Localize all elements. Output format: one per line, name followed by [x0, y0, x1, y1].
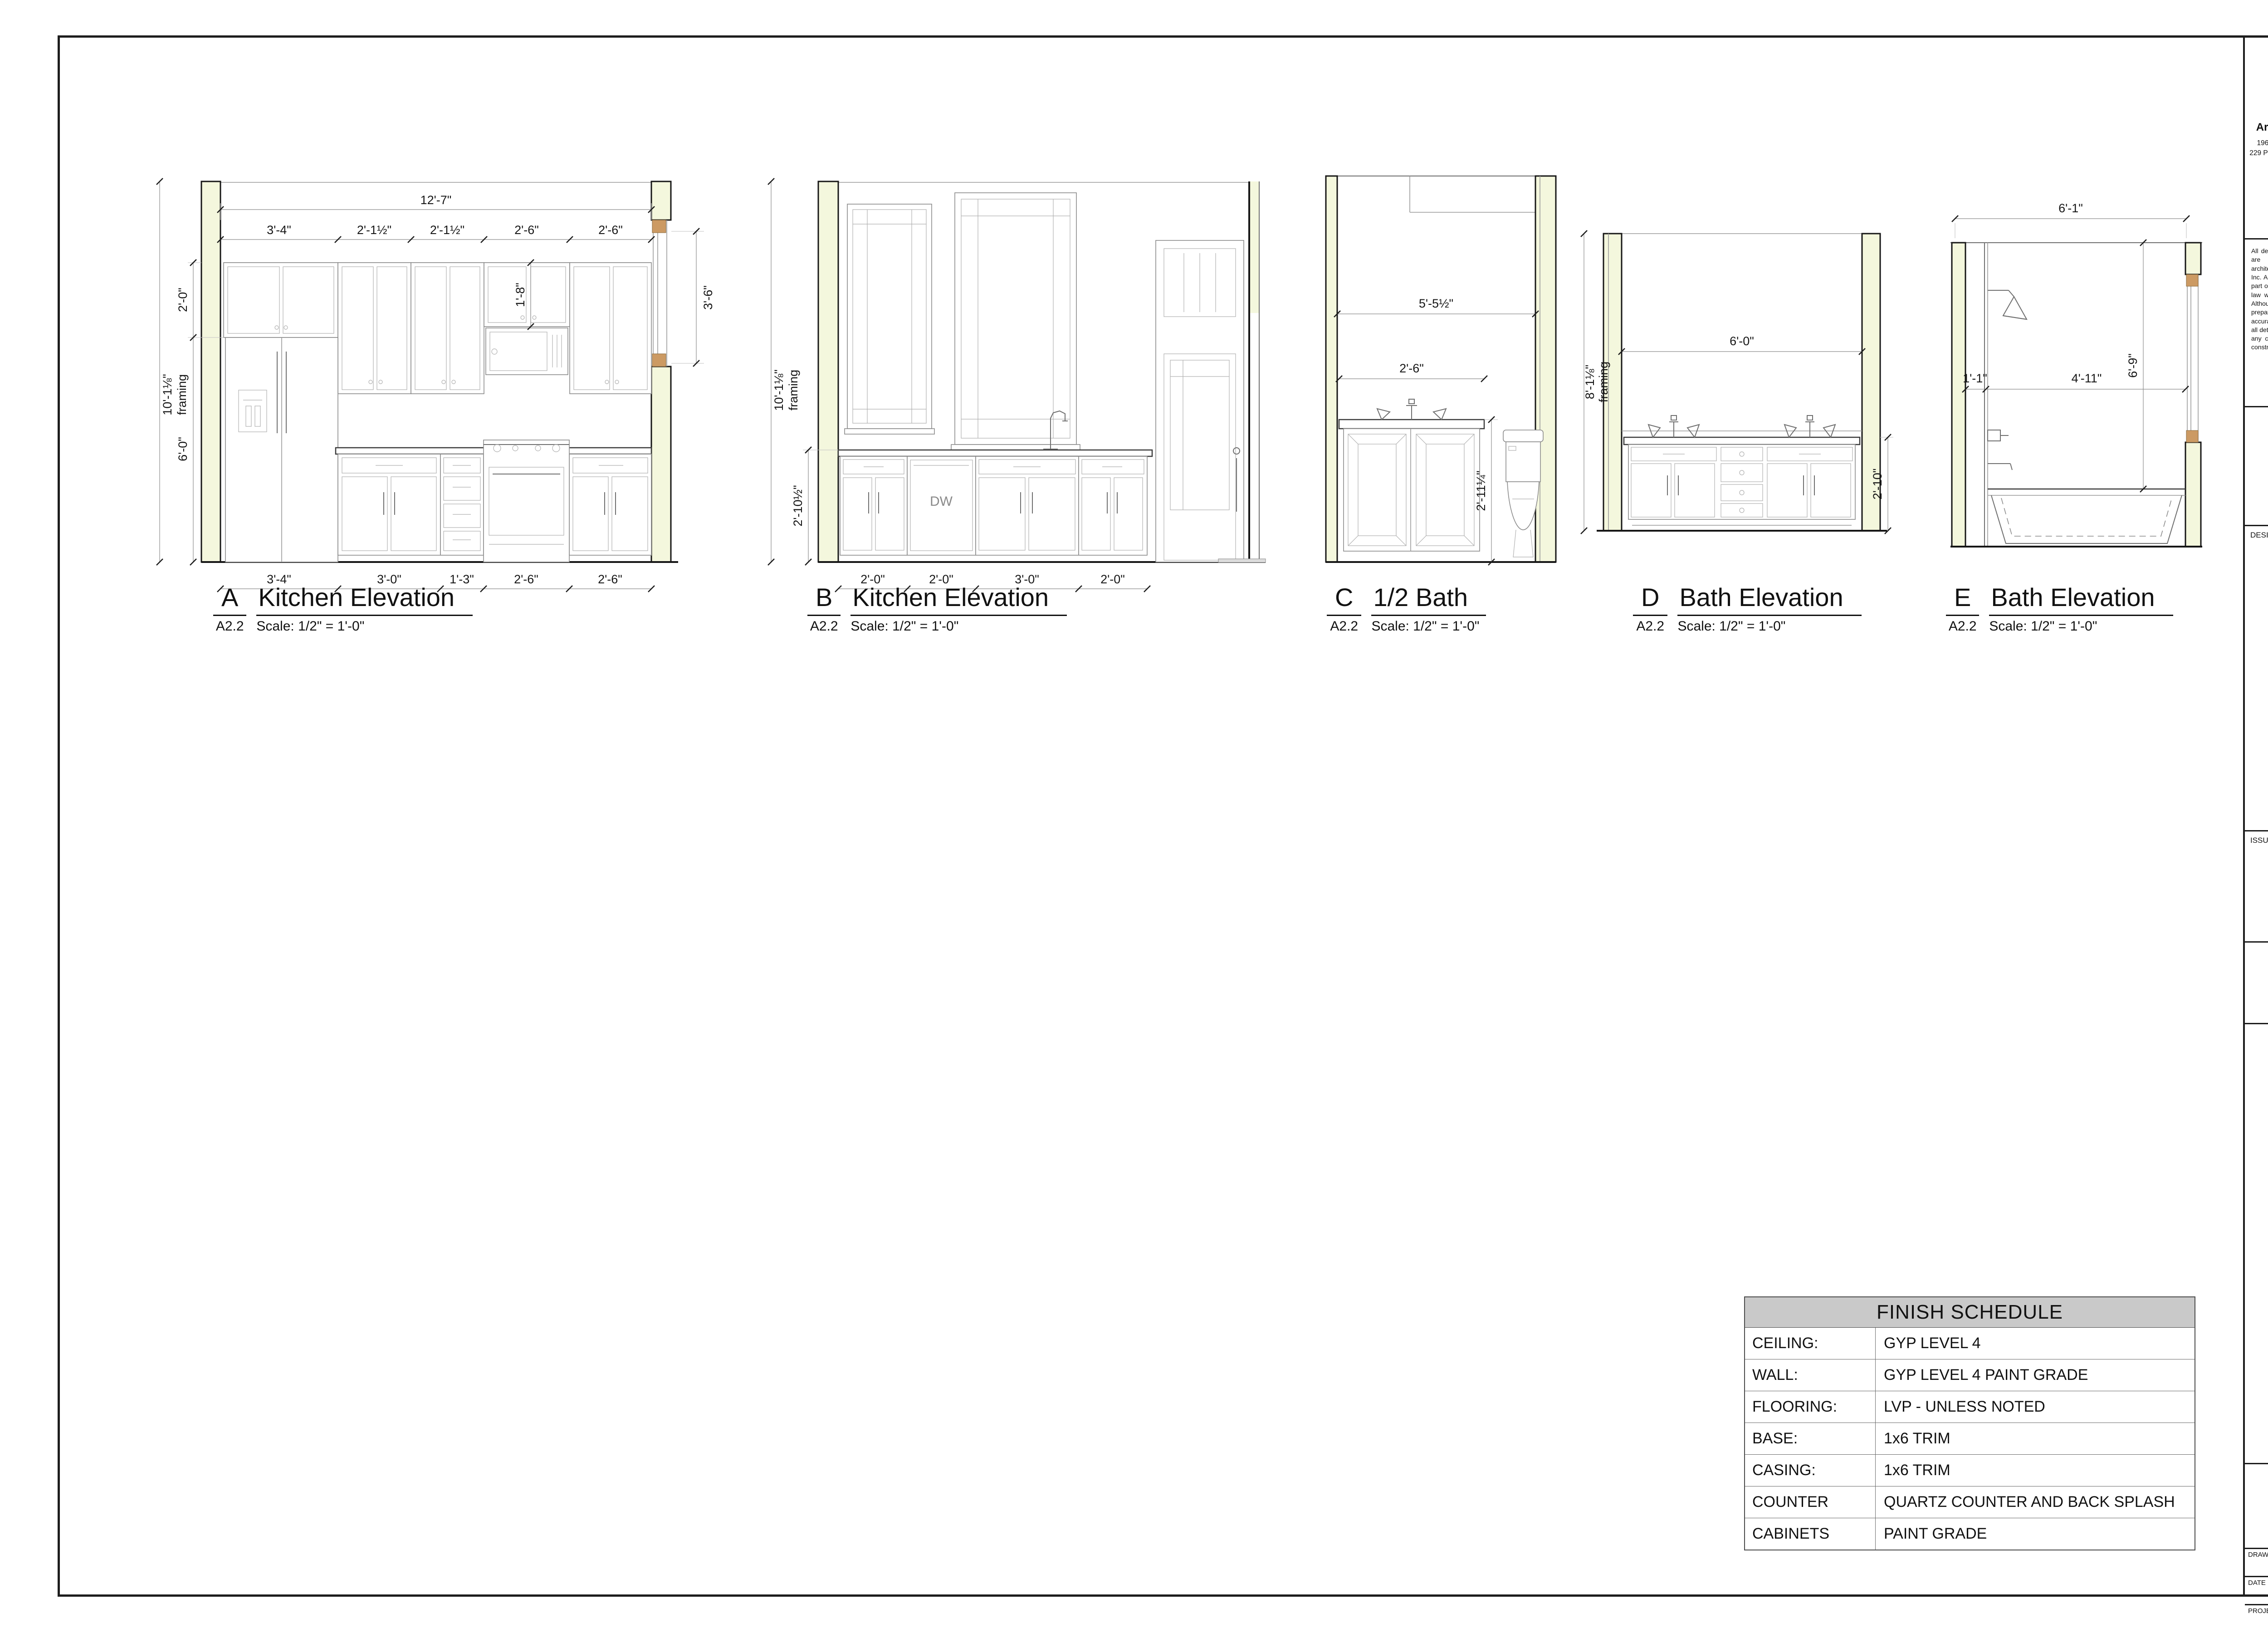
finish-label: CABINETS: [1745, 1518, 1876, 1550]
design-architect-label: DESIGN ARCHITECT:: [2245, 526, 2268, 540]
drawing-scale: Scale: 1/2" = 1'-0": [1371, 616, 1486, 634]
finish-label: COUNTER: [1745, 1486, 1876, 1518]
elevation-a-title: A A2.2 Kitchen Elevation Scale: 1/2" = 1…: [213, 582, 473, 634]
svg-text:2'-0": 2'-0": [1100, 572, 1125, 586]
elevation-e-drawing: 6'-1" 1'-1" 4'-11" 6'-9": [1937, 195, 2214, 626]
svg-text:2'-1½": 2'-1½": [430, 223, 464, 237]
svg-text:10'-1⅛": 10'-1⅛": [161, 374, 174, 415]
elevation-c-faucet: [1377, 399, 1446, 420]
project-number-label: PROJECT NUMBER: [2248, 1607, 2268, 1615]
elevation-d-faucets: [1648, 416, 1835, 437]
drawing-sheet-ref: A2.2: [1327, 616, 1361, 634]
svg-text:3'-4": 3'-4": [267, 223, 291, 237]
elevation-a-range: [484, 440, 569, 562]
svg-text:1'-8": 1'-8": [513, 283, 527, 307]
title-block: Architectural Overflow, LLC 1964 W Wayza…: [2243, 35, 2268, 1597]
architect-address-line2: Berkeley,CA 94704: [2245, 692, 2268, 702]
title-block-footer: DRAWING BY GC DATE 11/3/24 PROJECT NUMBE…: [2245, 1549, 2268, 1633]
firm-address-line2: 229 Peachtree St NE, Ste 1008 Atlanta, G…: [2245, 148, 2268, 158]
svg-text:2'-6": 2'-6": [514, 223, 539, 237]
svg-text:2'-6": 2'-6": [598, 572, 622, 586]
elevation-d-title: D A2.2 Bath Elevation Scale: 1/2" = 1'-0…: [1633, 582, 1862, 634]
table-row: CEILING: GYP LEVEL 4: [1745, 1328, 2195, 1359]
finish-schedule-title: FINISH SCHEDULE: [1745, 1297, 2195, 1328]
svg-text:2'-10½": 2'-10½": [791, 485, 805, 526]
table-row: CABINETS PAINT GRADE: [1745, 1518, 2195, 1550]
elevation-c-title: C A2.2 1/2 Bath Scale: 1/2" = 1'-0": [1327, 582, 1486, 634]
finish-value: QUARTZ COUNTER AND BACK SPLASH: [1876, 1486, 2195, 1518]
svg-text:1'-1": 1'-1": [1963, 372, 1987, 385]
svg-text:framing: framing: [175, 374, 189, 415]
svg-text:2'-6": 2'-6": [514, 572, 538, 586]
svg-text:4'-11": 4'-11": [2072, 372, 2102, 385]
svg-text:6'-0": 6'-0": [1730, 334, 1754, 348]
finish-label: WALL:: [1745, 1359, 1876, 1391]
disclaimer-text: All designs and plans contained in these…: [2251, 247, 2268, 352]
svg-text:10'-1⅛": 10'-1⅛": [772, 369, 786, 411]
svg-text:3'-6": 3'-6": [701, 285, 715, 310]
svg-text:2'-11¼": 2'-11¼": [1474, 470, 1488, 511]
svg-text:2'-0": 2'-0": [176, 288, 190, 312]
elevation-a-refrigerator: [225, 337, 338, 562]
elevation-a-drawing: 12'-7" 3'-4" 2'-1½" 2'-1½" 2'-6" 2'-6" 3…: [150, 177, 726, 635]
preliminary-stamp: PRELIMINARY - NOT FOR CONSTRUCTION: [2245, 943, 2268, 1024]
issue-section: ISSUE:: [2245, 831, 2268, 943]
elevation-c-vanity: [1339, 420, 1484, 551]
table-row: COUNTER QUARTZ COUNTER AND BACK SPLASH: [1745, 1486, 2195, 1518]
finish-label: FLOORING:: [1745, 1391, 1876, 1423]
svg-text:2'-10": 2'-10": [1871, 469, 1884, 500]
finish-label: CASING:: [1745, 1455, 1876, 1486]
date-label: DATE: [2248, 1579, 2266, 1587]
footer-left-column: DRAWING BY GC DATE 11/3/24 PROJECT NUMBE…: [2245, 1549, 2268, 1633]
drawing-name: Kitchen Elevation: [256, 582, 473, 616]
elevation-b-base-cabinets: DW: [838, 450, 1152, 555]
table-row: FLOORING: LVP - UNLESS NOTED: [1745, 1391, 2195, 1423]
date-row: DATE 11/3/24: [2245, 1577, 2268, 1605]
elevation-d-vanity: [1622, 431, 1862, 525]
drawing-sheet-ref: A2.2: [807, 616, 841, 634]
disclaimer-section: All designs and plans contained in these…: [2245, 240, 2268, 407]
svg-text:DW: DW: [930, 494, 953, 509]
svg-text:2'-6": 2'-6": [598, 223, 623, 237]
design-architect-section: DESIGN ARCHITECT:: [2245, 526, 2268, 831]
elevation-e-title: E A2.2 Bath Elevation Scale: 1/2" = 1'-0…: [1946, 582, 2173, 634]
finish-value: 1x6 TRIM: [1876, 1423, 2195, 1454]
issue-label: ISSUE:: [2245, 831, 2268, 845]
elevation-d-drawing: 8'-1⅛" framing 6'-0" 2'-10": [1579, 213, 1896, 621]
elevation-b-drawing: DW: [726, 177, 1302, 635]
finish-label: CEILING:: [1745, 1328, 1876, 1359]
drawing-by-label: DRAWING BY: [2248, 1551, 2268, 1559]
drawing-scale: Scale: 1/2" = 1'-0": [850, 616, 1067, 634]
architect-address: 2100 Milvia St, Ste 125 Berkeley,CA 9470…: [2245, 682, 2268, 713]
drawing-sheet: 12'-7" 3'-4" 2'-1½" 2'-1½" 2'-6" 2'-6" 3…: [0, 0, 2268, 1633]
svg-text:12'-7": 12'-7": [420, 193, 452, 207]
firm-address: 1964 W Wayzata Blvd, Long Lake, MN 55356…: [2245, 138, 2268, 159]
architect-name: Opticos Design, Inc.: [2245, 668, 2268, 679]
sheet-title: Interior Elevations: [2245, 1464, 2268, 1549]
svg-text:2'-1½": 2'-1½": [357, 223, 391, 237]
drawing-sheet-ref: A2.2: [213, 616, 246, 634]
table-row: WALL: GYP LEVEL 4 PAINT GRADE: [1745, 1359, 2195, 1391]
table-row: CASING: 1x6 TRIM: [1745, 1455, 2195, 1486]
finish-value: PAINT GRADE: [1876, 1518, 2195, 1550]
project-number-row: PROJECT NUMBER PRJ - 342: [2245, 1605, 2268, 1633]
drawing-name: Kitchen Elevation: [850, 582, 1067, 616]
svg-text:framing: framing: [1597, 362, 1610, 402]
drawing-by-row: DRAWING BY GC: [2245, 1549, 2268, 1577]
elevation-b-windows: [845, 193, 1080, 450]
finish-label: BASE:: [1745, 1423, 1876, 1454]
elevation-e-shower-fixtures: [1988, 290, 2027, 470]
project-title-rotated: West Village CY UNIT-3 Florence, Alabama: [2245, 1024, 2268, 1464]
firm-address-line1: 1964 W Wayzata Blvd, Long Lake, MN 55356: [2245, 138, 2268, 148]
elevation-b-title: B A2.2 Kitchen Elevation Scale: 1/2" = 1…: [807, 582, 1067, 634]
svg-text:6'-9": 6'-9": [2126, 353, 2140, 378]
elevation-e-walls: [1950, 243, 2202, 547]
drawing-scale: Scale: 1/2" = 1'-0": [1989, 616, 2173, 634]
svg-text:8'-1⅛": 8'-1⅛": [1583, 365, 1597, 399]
drawing-letter: E: [1946, 582, 1979, 616]
drawing-sheet-ref: A2.2: [1946, 616, 1979, 634]
finish-value: 1x6 TRIM: [1876, 1455, 2195, 1486]
firm-website: www.architecturaloverflow.com: [2245, 176, 2268, 186]
copyright-line: © 2024 Opticos Design Inc.: [2251, 357, 2268, 365]
blank-section: [2245, 407, 2268, 526]
svg-text:5'-5½": 5'-5½": [1419, 297, 1453, 310]
drawing-name: Bath Elevation: [1989, 582, 2173, 616]
elevation-a-microwave: [486, 328, 568, 375]
drawing-name: 1/2 Bath: [1371, 582, 1486, 616]
elevation-c-drawing: 5'-5½" 2'-6" 2'-11¼": [1311, 172, 1574, 635]
svg-text:6'-1": 6'-1": [2058, 201, 2083, 215]
project-title-section: West Village CY UNIT-3 Florence, Alabama: [2245, 1024, 2268, 1464]
architect-website: opticosdesign.com: [2245, 703, 2268, 713]
drawing-letter: B: [807, 582, 841, 616]
drawing-name: Bath Elevation: [1677, 582, 1861, 616]
elevation-e-tub: [1988, 489, 2185, 543]
firm-contact: (952) 960-8212 www.architecturaloverflow…: [2245, 166, 2268, 186]
drawing-letter: C: [1327, 582, 1361, 616]
finish-value: GYP LEVEL 4: [1876, 1328, 2195, 1359]
table-row: BASE: 1x6 TRIM: [1745, 1423, 2195, 1455]
svg-text:6'-0": 6'-0": [176, 437, 190, 461]
finish-schedule-table: FINISH SCHEDULE CEILING: GYP LEVEL 4 WAL…: [1744, 1296, 2195, 1550]
drawing-scale: Scale: 1/2" = 1'-0": [1677, 616, 1861, 634]
firm-name: Architectural Overflow, LLC: [2245, 121, 2268, 134]
finish-value: LVP - UNLESS NOTED: [1876, 1391, 2195, 1423]
firm-phone: (952) 960-8212: [2245, 166, 2268, 176]
drawing-letter: A: [213, 582, 246, 616]
architect-address-line1: 2100 Milvia St, Ste 125: [2245, 682, 2268, 692]
svg-text:2'-6": 2'-6": [1399, 362, 1424, 375]
firm-info-section: Architectural Overflow, LLC 1964 W Wayza…: [2245, 35, 2268, 240]
finish-value: GYP LEVEL 4 PAINT GRADE: [1876, 1359, 2195, 1391]
drawing-letter: D: [1633, 582, 1667, 616]
svg-text:framing: framing: [787, 370, 800, 411]
drawing-sheet-ref: A2.2: [1633, 616, 1667, 634]
drawing-scale: Scale: 1/2" = 1'-0": [256, 616, 473, 634]
